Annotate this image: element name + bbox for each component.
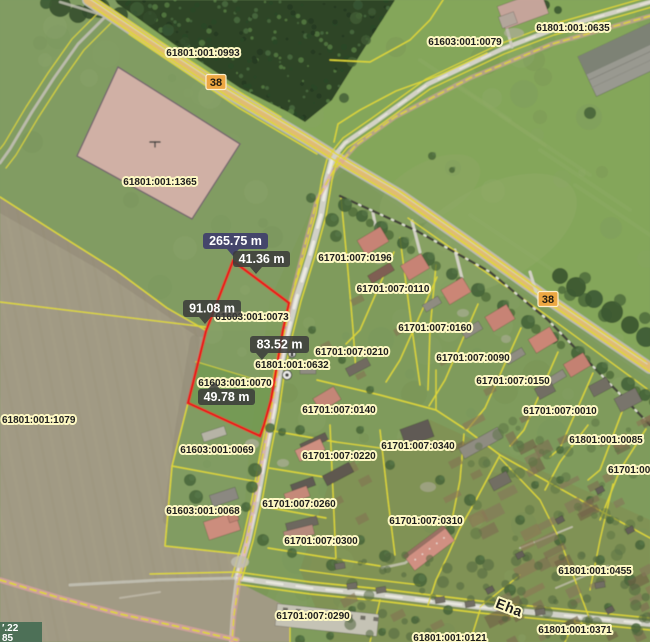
svg-text:61801:001:0121: 61801:001:0121 bbox=[413, 633, 487, 642]
svg-text:85: 85 bbox=[2, 633, 14, 642]
svg-text:61603:001:0079: 61603:001:0079 bbox=[428, 37, 502, 48]
svg-text:61801:001:0371: 61801:001:0371 bbox=[538, 625, 612, 636]
svg-text:83.52 m: 83.52 m bbox=[257, 337, 303, 351]
svg-text:61801:001:0455: 61801:001:0455 bbox=[558, 566, 632, 577]
svg-text:41.36 m: 41.36 m bbox=[239, 252, 285, 266]
svg-text:61701:007:0260: 61701:007:0260 bbox=[262, 499, 336, 510]
svg-text:61701:007:0090: 61701:007:0090 bbox=[436, 353, 510, 364]
svg-text:61801:001:0632: 61801:001:0632 bbox=[255, 360, 329, 371]
svg-text:38: 38 bbox=[210, 77, 222, 89]
svg-text:61701:007:0140: 61701:007:0140 bbox=[302, 405, 376, 416]
svg-text:61701:007:0196: 61701:007:0196 bbox=[318, 253, 392, 264]
svg-text:61801:001:0085: 61801:001:0085 bbox=[569, 435, 643, 446]
svg-text:61701:007:0100: 61701:007:0100 bbox=[608, 465, 650, 476]
svg-text:61701:007:0340: 61701:007:0340 bbox=[381, 441, 455, 452]
svg-text:61701:007:0210: 61701:007:0210 bbox=[315, 347, 389, 358]
svg-text:61801:001:0635: 61801:001:0635 bbox=[536, 23, 610, 34]
svg-text:61701:007:0290: 61701:007:0290 bbox=[276, 611, 350, 622]
svg-text:265.75 m: 265.75 m bbox=[209, 234, 262, 248]
svg-text:61701:007:0300: 61701:007:0300 bbox=[284, 536, 358, 547]
svg-text:61603:001:0068: 61603:001:0068 bbox=[166, 506, 240, 517]
svg-text:61701:007:0150: 61701:007:0150 bbox=[476, 376, 550, 387]
svg-text:91.08 m: 91.08 m bbox=[189, 301, 235, 315]
svg-text:49.78 m: 49.78 m bbox=[204, 390, 250, 404]
svg-text:61701:007:0220: 61701:007:0220 bbox=[302, 451, 376, 462]
svg-text:61801:001:0993: 61801:001:0993 bbox=[166, 48, 240, 59]
svg-text:38: 38 bbox=[542, 294, 554, 306]
svg-text:61701:007:0010: 61701:007:0010 bbox=[523, 406, 597, 417]
svg-text:61603:001:0069: 61603:001:0069 bbox=[180, 445, 254, 456]
svg-text:61701:007:0110: 61701:007:0110 bbox=[357, 284, 430, 295]
svg-text:61701:007:0310: 61701:007:0310 bbox=[389, 516, 463, 527]
svg-text:61801:001:1079: 61801:001:1079 bbox=[2, 415, 76, 426]
svg-text:61801:001:1365: 61801:001:1365 bbox=[123, 177, 197, 188]
svg-text:61701:007:0160: 61701:007:0160 bbox=[398, 323, 472, 334]
